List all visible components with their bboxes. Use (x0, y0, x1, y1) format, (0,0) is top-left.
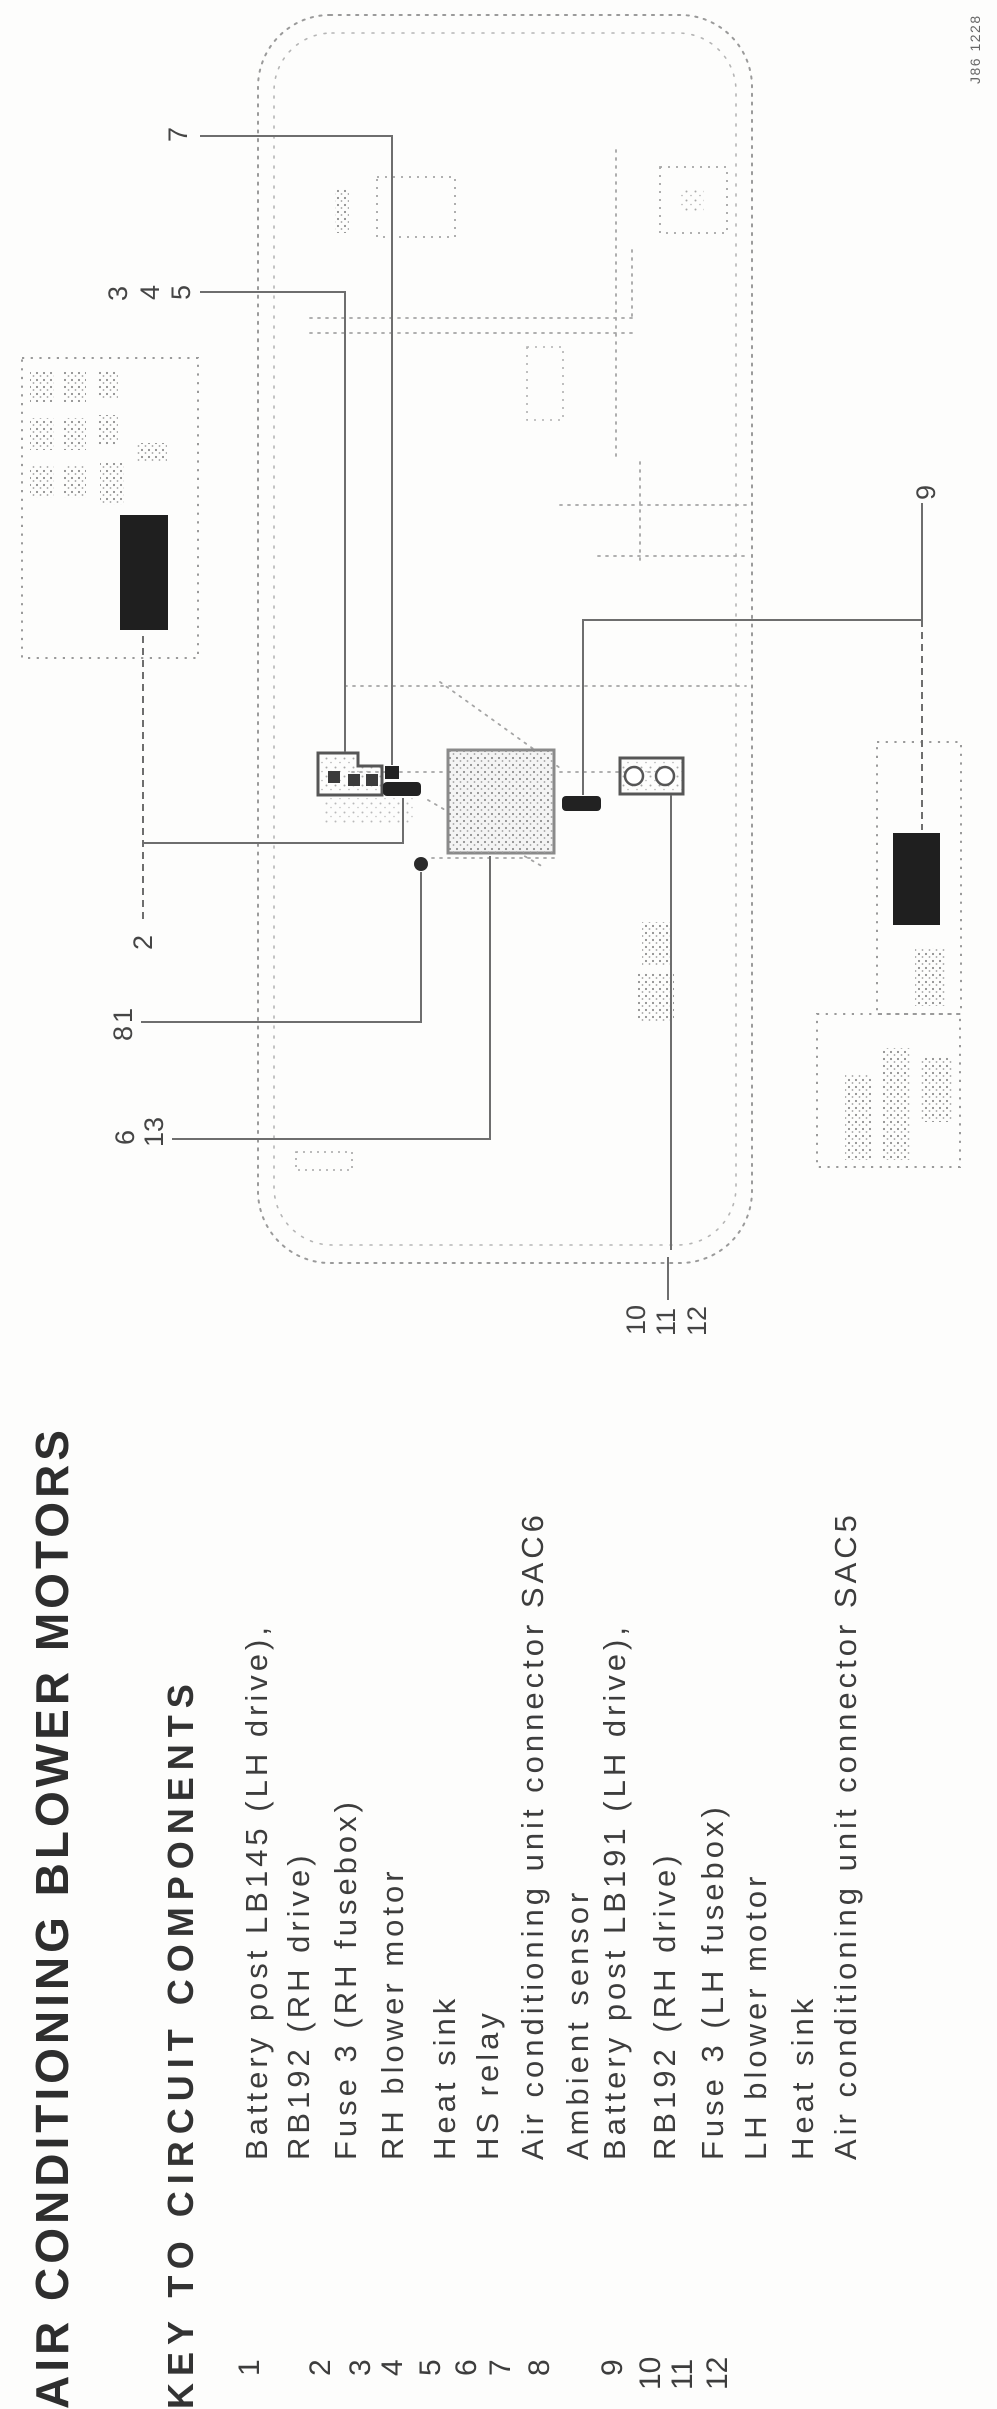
diagram-callout-3: 3 (105, 286, 131, 301)
vent-grille (137, 443, 167, 461)
trunk-grille-2 (638, 972, 674, 1022)
trunk-grille-dots (638, 922, 674, 1022)
diagram-callout-4: 4 (137, 285, 163, 300)
key-item-label-3: RH blower motor (376, 1867, 410, 2160)
key-item-number-12: 12 (703, 2357, 733, 2390)
key-item-number-6: 6 (452, 2359, 482, 2376)
lh-heatsink-bar (562, 796, 601, 811)
relay-element (348, 774, 360, 786)
key-item-label-11: Heat sink (786, 1995, 820, 2160)
vent-grille (64, 466, 86, 498)
key-item-label-10: LH blower motor (739, 1873, 773, 2160)
leader-line-1-8 (141, 872, 421, 1022)
diagram-callout-8: 8 (110, 1026, 136, 1041)
key-item-number-10: 10 (636, 2357, 666, 2390)
diagram-callout-2: 2 (130, 935, 156, 950)
vent-grille (100, 463, 124, 505)
key-item-label-1-line1: Battery post LB145 (LH drive), (240, 1623, 274, 2160)
key-item-label-2: Fuse 3 (RH fusebox) (329, 1798, 363, 2160)
relay-element (328, 771, 340, 783)
key-item-number-7: 7 (486, 2359, 516, 2376)
vent-grille (920, 1056, 952, 1122)
vent-grille (98, 370, 118, 398)
vent-grille (30, 418, 54, 450)
diagram-callout-13: 13 (141, 1117, 167, 1147)
key-item-number-2: 2 (306, 2359, 336, 2376)
page-title: AIR CONDITIONING BLOWER MOTORS (27, 1426, 77, 2409)
trunk-grille-1 (642, 922, 672, 966)
key-item-label-1-line2: RB192 (RH drive) (282, 1851, 316, 2160)
figure-code: J86 1228 (967, 14, 983, 84)
lh-blower-motor (893, 833, 940, 925)
ac-unit-stipple (448, 750, 554, 853)
key-item-label-4: Heat sink (428, 1995, 462, 2160)
cluster-stipple-dots (325, 798, 415, 824)
headlamp-dots (680, 190, 704, 212)
vent-grille (882, 1048, 910, 1160)
leader-line-3-4-5 (200, 292, 345, 752)
key-item-label-12: Air conditioning unit connector SAC5 (829, 1511, 863, 2160)
car-body-outline (258, 15, 752, 1263)
page-subtitle: KEY TO CIRCUIT COMPONENTS (161, 1677, 201, 2409)
vent-grille (64, 372, 86, 402)
battery-post-dot (414, 857, 428, 871)
leader-line-6-13 (172, 856, 490, 1139)
front-vent-grille (335, 188, 349, 233)
vent-grille (98, 415, 118, 445)
ambient-sensor-block (385, 766, 399, 779)
key-item-number-4: 4 (378, 2359, 408, 2376)
key-item-number-9: 9 (598, 2359, 628, 2376)
vent-grille (30, 372, 54, 402)
key-item-label-8-line1: Battery post LB191 (LH drive), (598, 1623, 632, 2160)
manual-page: AIR CONDITIONING BLOWER MOTORS KEY TO CI… (0, 0, 997, 2409)
relay-element (366, 774, 378, 786)
key-item-number-5: 5 (416, 2359, 446, 2376)
key-item-number-1: 1 (235, 2359, 265, 2376)
trunk-latch-box (296, 1152, 352, 1170)
vent-grille (30, 466, 54, 498)
key-item-label-7: Ambient sensor (561, 1889, 595, 2160)
key-item-label-5: HS relay (471, 2009, 505, 2160)
relay-circle (656, 767, 674, 785)
diagram-callout-12: 12 (684, 1306, 710, 1336)
vent-grille (845, 1075, 871, 1160)
rh-heatsink-bar (383, 782, 421, 796)
key-item-number-3: 3 (346, 2359, 376, 2376)
key-item-label-9: Fuse 3 (LH fusebox) (696, 1803, 730, 2160)
diagram-callout-5: 5 (168, 285, 194, 300)
rh-blower-motor (120, 515, 168, 630)
key-item-label-8-line2: RB192 (RH drive) (648, 1851, 682, 2160)
diagram-callout-1: 1 (110, 1008, 136, 1023)
vent-grille (64, 418, 86, 450)
diagram-callout-9: 9 (913, 485, 939, 500)
leader-line-7 (200, 136, 392, 765)
vent-grille (915, 948, 945, 1006)
diagram-callout-10: 10 (623, 1305, 649, 1335)
lh-unit-vent-grilles (845, 948, 952, 1160)
rh-inset-vent-grilles (30, 370, 167, 505)
key-item-number-8: 8 (525, 2359, 555, 2376)
leader-lines (141, 136, 922, 1300)
rh-blower-inset-box (22, 358, 198, 658)
key-item-number-11: 11 (668, 2359, 698, 2390)
diagram-callout-6: 6 (112, 1130, 138, 1145)
relay-circle (625, 767, 643, 785)
front-console-box (377, 177, 455, 237)
front-structure-lines (310, 150, 635, 460)
diagram-callout-11: 11 (653, 1308, 679, 1336)
diagram-callout-7: 7 (165, 127, 191, 142)
key-item-label-6: Air conditioning unit connector SAC6 (516, 1511, 550, 2160)
dash-panel-box (527, 347, 563, 420)
